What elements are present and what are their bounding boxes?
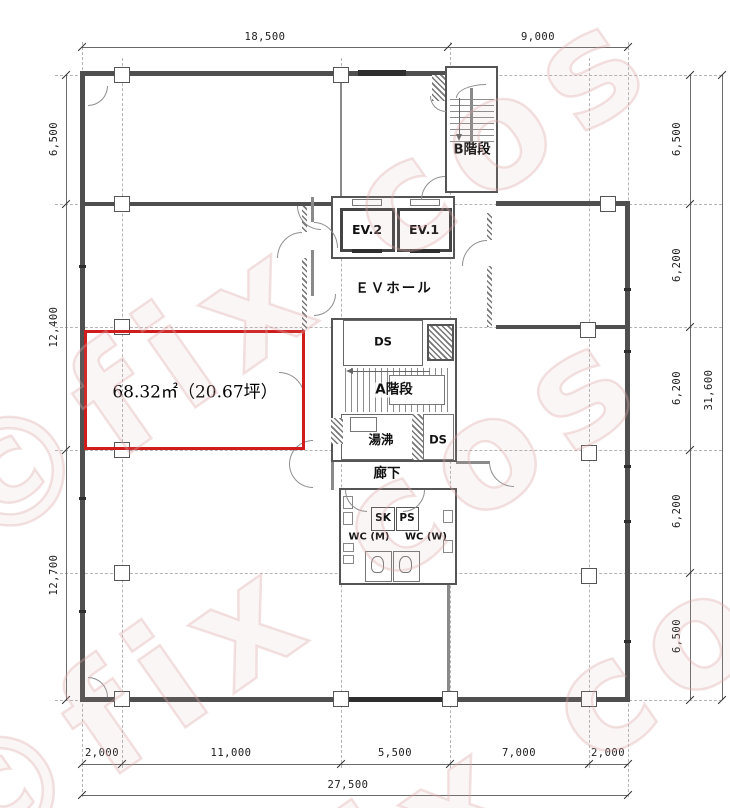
dim-label-bottom: 7,000 [502, 747, 536, 759]
basin-fixture [343, 543, 354, 552]
basin-fixture [343, 555, 354, 564]
window-mullion [624, 640, 631, 643]
door-arc [277, 232, 302, 258]
door-arc [88, 86, 108, 106]
stair-direction-line [352, 371, 430, 372]
door-opening [302, 232, 307, 258]
column [581, 691, 597, 707]
wall [358, 70, 406, 76]
window-mullion [624, 465, 631, 468]
column [600, 196, 616, 212]
dim-label-bottom: 2,000 [85, 747, 119, 759]
door-arc [421, 176, 445, 200]
dim-label-right: 6,500 [671, 619, 683, 653]
column [114, 691, 130, 707]
door-opening [487, 240, 492, 266]
partition-wall [447, 585, 450, 699]
dim-label-bottom: 5,500 [378, 747, 412, 759]
elevator-vent [352, 199, 382, 206]
dim-label-right: 6,500 [671, 122, 683, 156]
dim-label-bottom-total: 27,500 [328, 779, 369, 791]
dimension-line-left [66, 75, 67, 700]
dim-label-left: 12,400 [48, 307, 60, 348]
floor-plan: 18,500 9,000 6,500 12,400 12,700 6,500 6… [0, 0, 730, 808]
dimension-line-right [690, 75, 691, 700]
ds-mid-label: DS [428, 434, 448, 447]
column [333, 67, 349, 83]
elevator-door [352, 249, 382, 253]
elevator-ev1-label: EV.1 [408, 223, 440, 237]
dim-label-right: 6,200 [671, 494, 683, 528]
partition-wall [487, 213, 492, 327]
partition-wall [340, 80, 342, 204]
dim-label-bottom: 11,000 [211, 747, 252, 759]
partition-wall [412, 414, 423, 460]
stair-direction-arrow [456, 134, 462, 141]
partition-wall [331, 418, 343, 444]
wc-w-label: WC (W) [404, 532, 448, 543]
dimension-line-bottom [82, 764, 628, 765]
column [114, 196, 130, 212]
elevator-door [410, 249, 440, 253]
basin-fixture [443, 540, 453, 553]
wc-m-label: WC (M) [348, 532, 391, 543]
door-arc [489, 462, 514, 487]
stairwell-a-label: A階段 [374, 383, 413, 398]
column [333, 691, 349, 707]
door-arc [314, 294, 336, 316]
dim-label-left: 6,500 [48, 122, 60, 156]
dimension-line-right-total [722, 75, 723, 700]
dim-label-right: 6,200 [671, 371, 683, 405]
stair-rail [470, 88, 473, 144]
stairwell-b-label: B階段 [452, 143, 491, 158]
wall [625, 201, 630, 702]
window-mullion [79, 265, 86, 268]
dimension-line-bottom-total [82, 795, 628, 796]
dim-label-right-total: 31,600 [703, 370, 715, 411]
dim-label-left: 12,700 [48, 555, 60, 596]
dimension-line-top [82, 47, 628, 48]
window-mullion [624, 288, 631, 291]
window-mullion [79, 497, 86, 500]
ev-hall-label: ＥＶホール [354, 282, 434, 297]
column [114, 565, 130, 581]
sk-label: SK [374, 513, 392, 525]
kitchenette-label: 湯沸 [367, 433, 394, 447]
elevator-ev2-label: EV.2 [351, 223, 383, 237]
column [581, 568, 597, 584]
dim-label-top: 18,500 [245, 31, 286, 43]
door-arc [88, 677, 108, 697]
toilet-fixture [399, 556, 412, 573]
door-arc [430, 96, 446, 112]
door-arc [289, 464, 313, 488]
partition-wall [331, 460, 334, 490]
wall [496, 325, 628, 329]
column [580, 322, 596, 338]
elevator-vent [410, 199, 440, 206]
wall [341, 697, 450, 702]
dim-label-top: 9,000 [521, 31, 555, 43]
window-mullion [624, 520, 631, 523]
corridor-label: 廊下 [373, 467, 402, 482]
column [442, 691, 458, 707]
ds-label: DS [373, 336, 393, 349]
ps-label: PS [398, 513, 415, 525]
shaft [427, 324, 454, 361]
urinal-fixture [343, 512, 353, 525]
window-mullion [624, 350, 631, 353]
grid-line [589, 58, 590, 768]
basin-fixture [443, 510, 453, 523]
dim-label-bottom: 2,000 [591, 747, 625, 759]
dim-label-right: 6,200 [671, 248, 683, 282]
column [581, 445, 597, 461]
door-arc [462, 240, 487, 266]
sink-counter [350, 417, 377, 432]
toilet-fixture [371, 556, 384, 573]
column [114, 67, 130, 83]
stair-direction-arrow [346, 368, 353, 374]
unit-area-label: 68.32㎡（20.67坪） [112, 378, 277, 403]
stair-direction-line [459, 98, 460, 134]
window-mullion [79, 610, 86, 613]
partition-wall [456, 461, 490, 464]
